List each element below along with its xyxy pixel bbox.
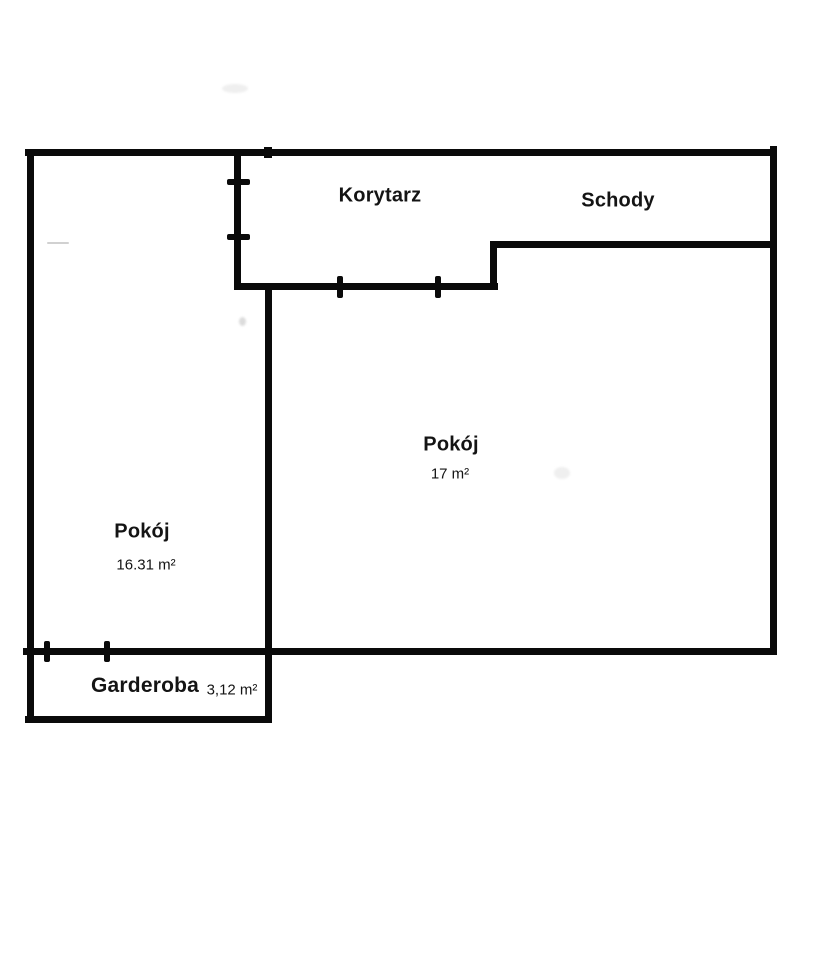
room-area-pokoj-main: 17 m² — [431, 466, 469, 483]
outer-wall-left — [27, 149, 34, 723]
outer-wall-top — [25, 149, 777, 156]
outer-wall-right — [770, 146, 777, 653]
korytarz-wall-left — [234, 152, 241, 290]
door-tick-garderoba-right — [104, 641, 110, 662]
scan-artifact-squiggle — [239, 317, 246, 326]
schody-wall-bottom — [490, 241, 777, 248]
room-label-garderoba: Garderoba — [91, 674, 199, 698]
scan-artifact-smudge-middle — [554, 467, 570, 479]
room-area-pokoj-left: 16.31 m² — [116, 557, 175, 574]
scan-artifact-dash — [47, 242, 69, 244]
scan-artifact-smudge-top — [222, 84, 248, 93]
room-label-korytarz: Korytarz — [339, 185, 422, 208]
door-tick-hall-bottom-left — [337, 276, 343, 298]
door-tick-garderoba-left — [44, 641, 50, 662]
outer-wall-bottom — [23, 648, 777, 655]
door-tick-hall-bottom-right — [435, 276, 441, 298]
floor-plan-canvas: Korytarz Schody Pokój 17 m² Pokój 16.31 … — [0, 0, 820, 967]
door-tick-korytarz-upper — [227, 179, 250, 185]
schody-wall-step-vertical — [490, 241, 497, 290]
top-wall-nub — [264, 147, 272, 158]
interior-wall-vertical-divider — [265, 283, 272, 723]
door-tick-korytarz-lower — [227, 234, 250, 240]
korytarz-wall-bottom — [234, 283, 498, 290]
garderoba-wall-bottom — [25, 716, 272, 723]
room-area-garderoba: 3,12 m² — [207, 682, 258, 699]
room-label-pokoj-left: Pokój — [114, 521, 169, 544]
room-label-pokoj-main: Pokój — [423, 434, 478, 457]
room-label-schody: Schody — [581, 190, 654, 213]
